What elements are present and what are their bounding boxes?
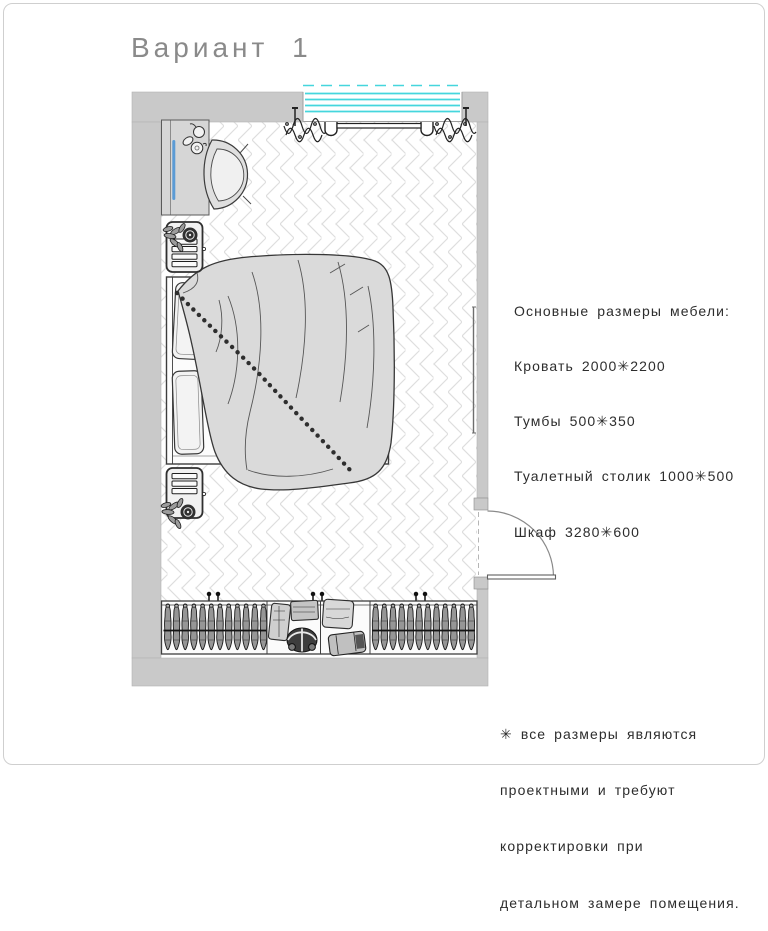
footnote-line: проектными и требуют: [500, 781, 740, 800]
door-jamb-top: [474, 498, 488, 510]
door-leaf: [488, 575, 556, 579]
mirror: [172, 140, 175, 200]
dressing-table: [162, 120, 210, 215]
furniture-sizes-header: Основные размеры мебели:: [514, 302, 734, 320]
furniture-size-item: Кровать 2000✳2200: [514, 357, 734, 375]
disclaimer-footnote: ✳ все размеры являются проектными и треб…: [500, 687, 740, 931]
nightstand-top: [163, 222, 206, 272]
rod-holder-right: [421, 122, 433, 136]
knob: [202, 247, 205, 250]
curtain-rod: [337, 124, 421, 129]
wardrobe: [162, 593, 478, 657]
footnote-line: корректировки при: [500, 837, 740, 856]
door-jamb-bottom: [474, 577, 488, 589]
furniture-size-item: Туалетный столик 1000✳500: [514, 467, 734, 485]
footnote-line: ✳ все размеры являются: [500, 725, 740, 744]
furniture-size-item: Шкаф 3280✳600: [514, 523, 734, 541]
furniture-sizes-note: Основные размеры мебели: Кровать 2000✳22…: [514, 265, 734, 560]
footnote-line: детальном замере помещения.: [500, 894, 740, 913]
bed: [167, 254, 395, 490]
knob: [202, 492, 205, 495]
furniture-size-item: Тумбы 500✳350: [514, 412, 734, 430]
window: [303, 86, 462, 122]
rod-holder-left: [325, 122, 337, 136]
page-title: Вариант 1: [131, 32, 312, 64]
